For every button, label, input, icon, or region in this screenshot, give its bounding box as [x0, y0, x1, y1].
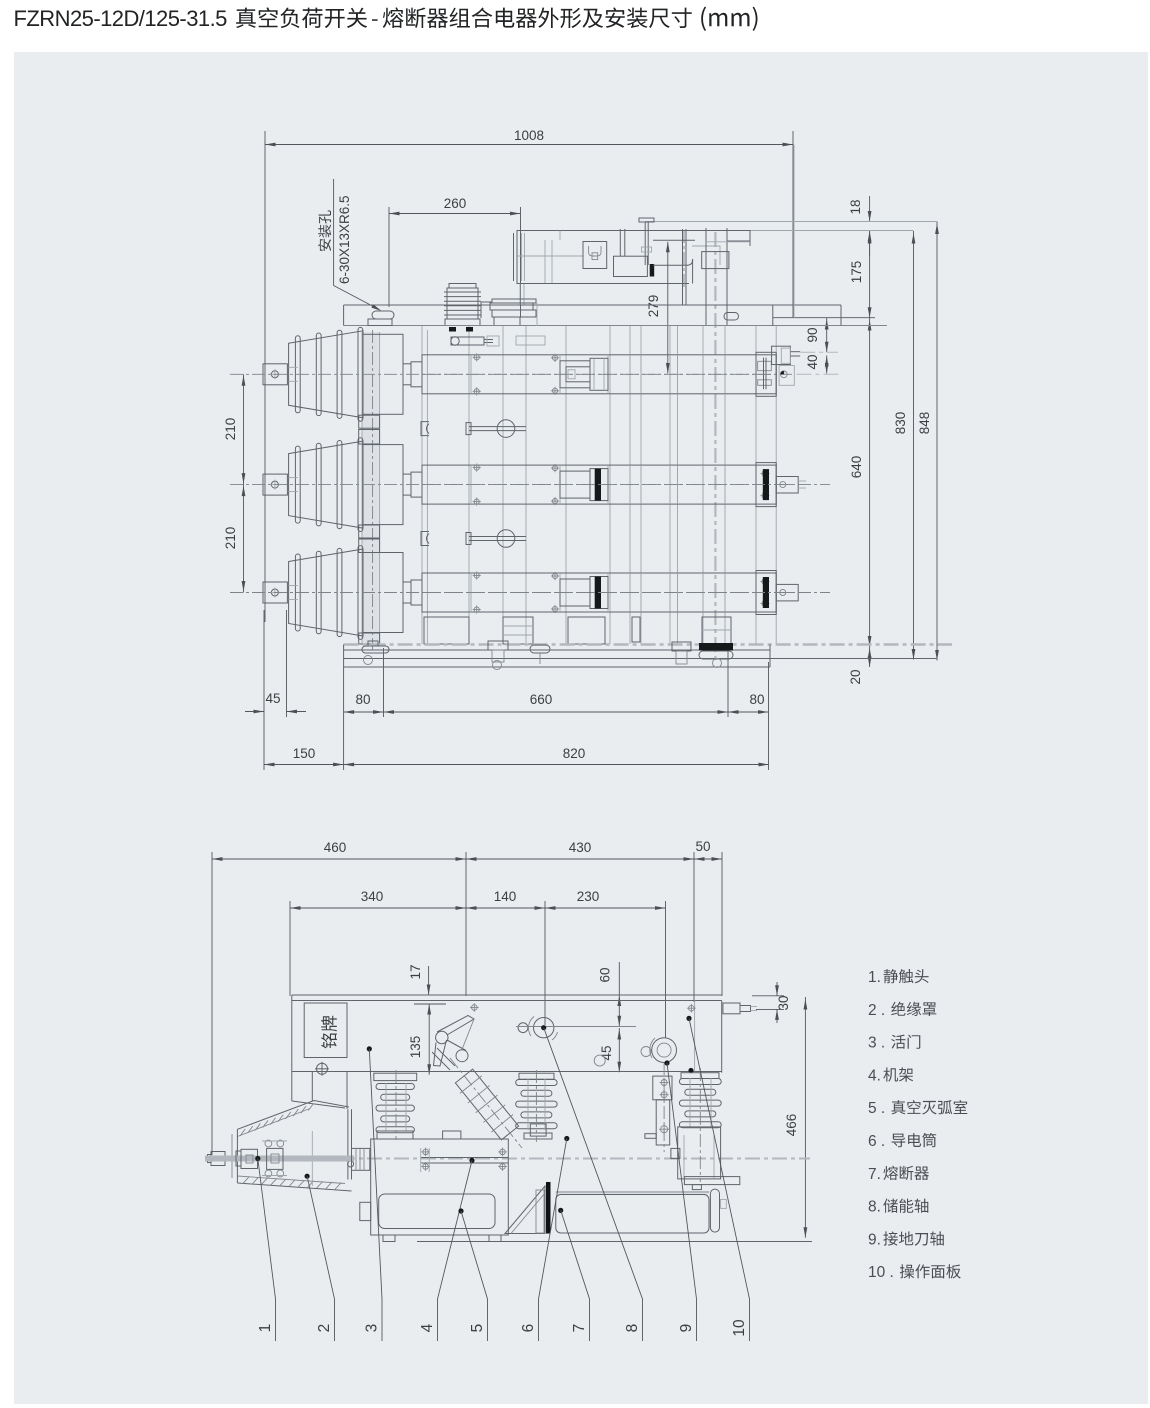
svg-text:40: 40	[805, 354, 820, 369]
svg-text:2 .: 2 .	[868, 1002, 885, 1019]
svg-text:2: 2	[316, 1324, 333, 1333]
svg-text:80: 80	[355, 692, 370, 707]
svg-text:8: 8	[624, 1324, 641, 1333]
svg-text:430: 430	[569, 840, 592, 855]
svg-text:9: 9	[678, 1324, 695, 1333]
svg-text:6 .: 6 .	[868, 1133, 885, 1150]
svg-text:18: 18	[848, 199, 863, 214]
svg-text:279: 279	[646, 295, 661, 318]
svg-text:6: 6	[520, 1324, 537, 1333]
svg-text:5: 5	[469, 1324, 486, 1333]
svg-text:340: 340	[361, 889, 384, 904]
svg-text:135: 135	[408, 1036, 423, 1059]
svg-text:1: 1	[257, 1324, 274, 1333]
svg-text:3: 3	[364, 1324, 381, 1333]
svg-text:20: 20	[848, 669, 863, 684]
svg-text:640: 640	[849, 456, 864, 479]
svg-text:848: 848	[917, 412, 932, 435]
svg-text:8.: 8.	[868, 1199, 881, 1216]
svg-text:7.: 7.	[868, 1166, 881, 1183]
svg-text:660: 660	[530, 692, 553, 707]
svg-text:FZRN25-12D/125-31.5: FZRN25-12D/125-31.5	[14, 6, 228, 31]
svg-text:1008: 1008	[514, 128, 544, 143]
svg-text:9.: 9.	[868, 1231, 881, 1248]
svg-text:10: 10	[731, 1319, 748, 1337]
svg-text:210: 210	[223, 527, 238, 550]
svg-text:17: 17	[408, 964, 423, 979]
svg-text:210: 210	[223, 418, 238, 441]
svg-text:820: 820	[563, 746, 586, 761]
svg-text:6-30X13XR6.5: 6-30X13XR6.5	[337, 195, 352, 284]
svg-text:460: 460	[324, 840, 347, 855]
svg-text:150: 150	[293, 746, 316, 761]
svg-text:45: 45	[599, 1045, 614, 1060]
svg-text:466: 466	[784, 1114, 799, 1137]
svg-text:4.: 4.	[868, 1067, 881, 1084]
svg-text:175: 175	[849, 261, 864, 284]
svg-text:260: 260	[444, 196, 467, 211]
svg-text:5 .: 5 .	[868, 1100, 885, 1117]
svg-text:90: 90	[805, 327, 820, 342]
svg-text:7: 7	[571, 1324, 588, 1333]
svg-text:45: 45	[265, 691, 280, 706]
svg-text:230: 230	[577, 889, 600, 904]
svg-text:3 .: 3 .	[868, 1035, 885, 1052]
svg-text:10 .: 10 .	[868, 1264, 894, 1281]
svg-text:80: 80	[749, 692, 764, 707]
svg-text:50: 50	[695, 839, 710, 854]
svg-text:140: 140	[494, 889, 517, 904]
svg-text:30: 30	[776, 995, 791, 1010]
svg-text:4: 4	[419, 1323, 436, 1332]
svg-text:1.: 1.	[868, 969, 881, 986]
svg-text:60: 60	[598, 967, 613, 982]
svg-text:830: 830	[893, 412, 908, 435]
